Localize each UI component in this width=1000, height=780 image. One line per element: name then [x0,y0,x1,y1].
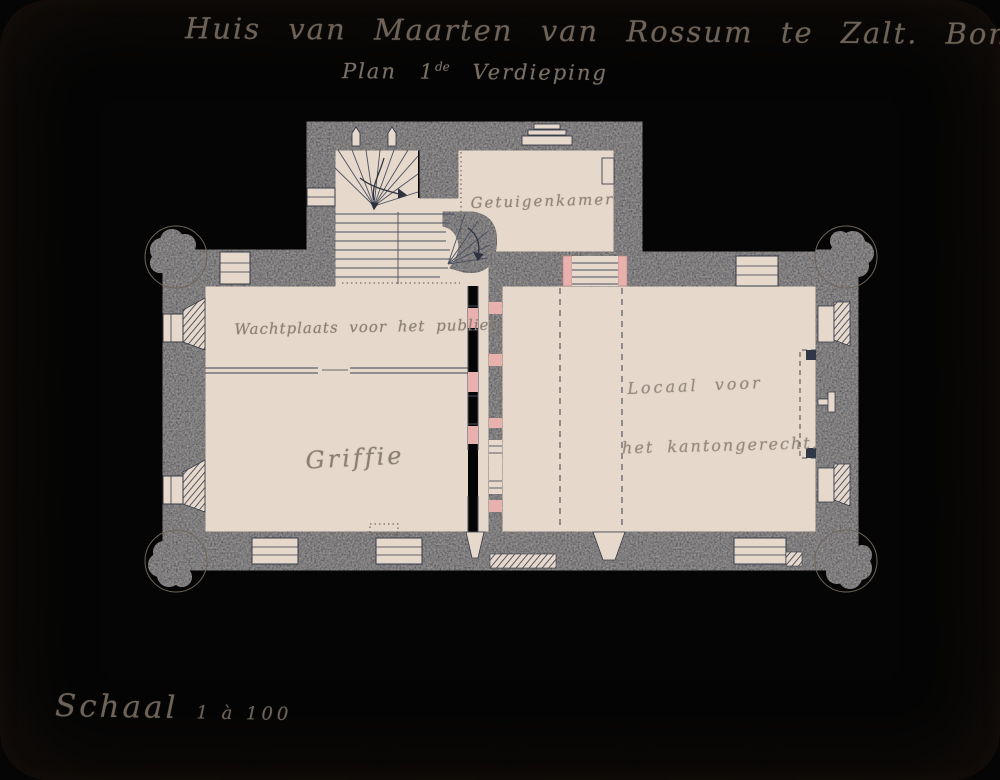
pink-panel [468,426,478,444]
hatched-window [818,302,850,346]
subtitle-floor-word: Verdieping [472,60,608,85]
drawing-subtitle: Plan 1de Verdieping [342,59,608,85]
tower-right-wall [614,122,642,252]
pink-jamb [563,256,572,286]
drawing-title: Huis van Maarten van Rossum te Zalt. Bom… [185,11,955,50]
door-opening [489,440,502,494]
pink-panel [489,418,502,428]
window [736,256,778,286]
courtroom-floor [502,286,816,532]
window [307,188,335,206]
hatched-window [818,464,850,506]
scale-label: Schaal1 à 100 [55,688,293,728]
window [252,538,298,564]
main-right-wall [816,250,858,570]
subtitle-ordinal: 1de [420,60,450,84]
hatched-sill [490,554,556,568]
main-left-wall [163,250,205,570]
step-opening [572,256,618,286]
stair-witness-divider-wall [420,122,458,198]
subtitle-plan-word: Plan [342,59,397,83]
recess-notch [806,350,816,360]
pink-jamb [618,256,627,286]
wall-niche [602,158,614,184]
scanned-drawing: Huis van Maarten van Rossum te Zalt. Bom… [0,0,1000,780]
pink-panel [489,302,502,314]
floor-plan [0,0,1000,780]
window [220,252,250,284]
window [376,538,422,564]
scale-word: Schaal [55,688,179,726]
pink-panel [489,500,502,512]
scale-value: 1 à 100 [196,702,292,725]
entrance-steps [563,256,627,286]
subtitle-ordinal-suffix: de [435,60,450,74]
pink-panel [468,372,478,392]
pink-panel [489,354,502,366]
